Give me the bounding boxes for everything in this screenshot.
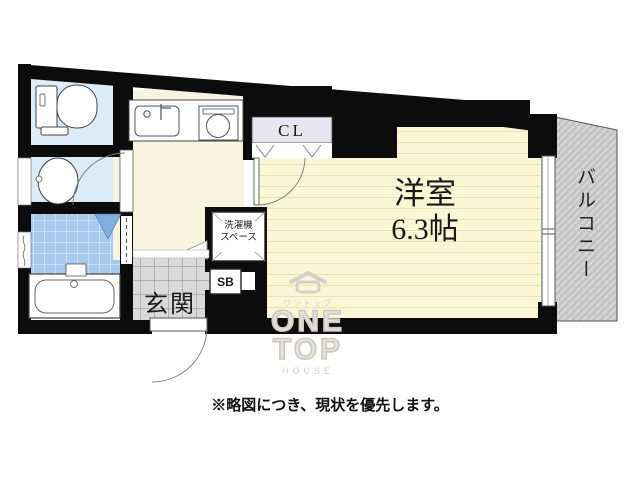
entrance-door-swing: [152, 327, 207, 382]
main-room-name: 洋室: [355, 176, 495, 212]
entrance-step: [133, 250, 209, 258]
entrance-label: 玄関: [133, 284, 207, 319]
kitchen-sink-icon: [135, 104, 179, 136]
disclaimer-note: ※略図につき、現状を優先します。: [165, 394, 495, 415]
bathtub-icon: [29, 274, 120, 318]
shoe-box-label: SB: [210, 271, 241, 293]
washroom-window: [18, 158, 31, 205]
main-room-size: 6.3帖: [355, 212, 495, 248]
closet-label: CL: [252, 118, 332, 143]
kitchen-counter: [129, 100, 243, 141]
stove-icon: [199, 106, 238, 140]
washer-space-label: 洗濯機 スペース: [211, 220, 266, 244]
watermark-word-one: ONE: [256, 308, 360, 336]
washer-space-line2: スペース: [220, 233, 257, 243]
watermark-logo: ワントップ ONE TOP HOUSE: [256, 270, 360, 376]
watermark-word-house: HOUSE: [256, 367, 360, 376]
washroom-door-leaf: [120, 150, 133, 212]
main-room-door-leaf: [254, 158, 259, 205]
watermark-word-top: TOP: [256, 336, 360, 364]
washer-space-line1: 洗濯機: [224, 221, 253, 231]
house-logo-icon: [287, 270, 329, 294]
bath-counter: [66, 264, 86, 276]
balcony-window: [542, 156, 555, 306]
entrance-door-leaf: [150, 318, 207, 331]
balcony-label: バルコニー: [571, 167, 598, 327]
floor-plan: CL 洋室 6.3帖 バルコニー 玄関 SB 洗濯機 スペース ワントップ ON…: [0, 0, 640, 480]
